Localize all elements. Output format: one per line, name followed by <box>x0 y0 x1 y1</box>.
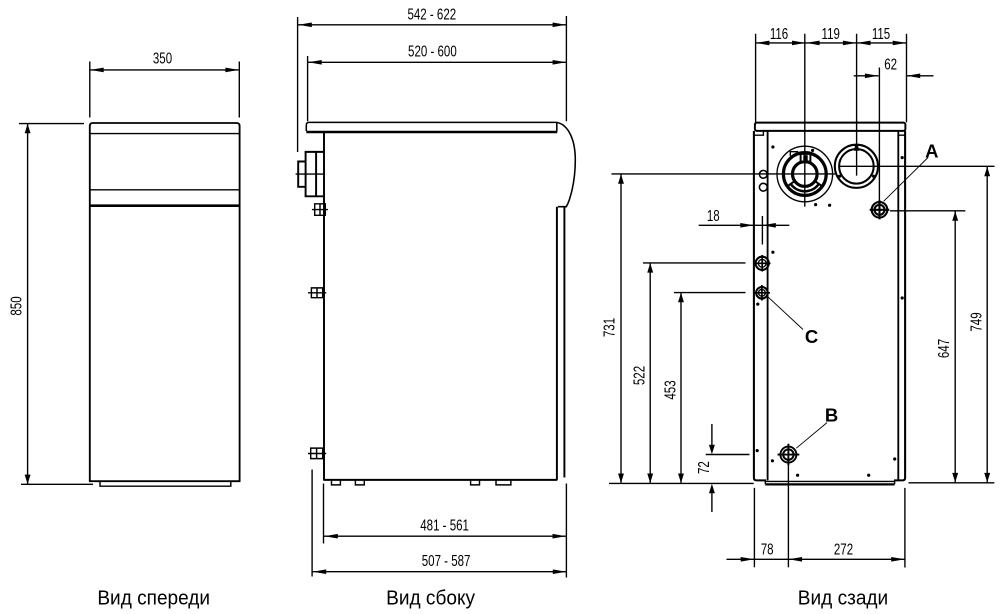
svg-text:647: 647 <box>934 339 952 358</box>
svg-text:542 - 622: 542 - 622 <box>407 4 456 22</box>
svg-text:62: 62 <box>884 55 897 73</box>
svg-text:78: 78 <box>761 539 774 557</box>
svg-text:522: 522 <box>630 366 648 385</box>
svg-text:520 - 600: 520 - 600 <box>408 42 457 60</box>
svg-text:507 - 587: 507 - 587 <box>422 551 471 569</box>
svg-text:18: 18 <box>707 206 720 224</box>
svg-text:850: 850 <box>7 296 25 315</box>
svg-text:272: 272 <box>834 539 853 557</box>
svg-text:72: 72 <box>694 461 712 474</box>
svg-text:Вид сзади: Вид сзади <box>798 587 888 610</box>
svg-text:749: 749 <box>966 312 984 331</box>
svg-text:Вид сбоку: Вид сбоку <box>386 587 475 610</box>
svg-text:481 - 561: 481 - 561 <box>420 516 469 534</box>
svg-text:731: 731 <box>599 318 617 337</box>
svg-text:453: 453 <box>661 380 679 399</box>
svg-text:B: B <box>825 405 838 426</box>
svg-text:C: C <box>805 326 818 347</box>
svg-text:119: 119 <box>822 24 841 42</box>
svg-text:350: 350 <box>153 49 172 67</box>
svg-text:116: 116 <box>770 24 789 42</box>
svg-text:A: A <box>925 140 938 161</box>
svg-text:Вид спереди: Вид спереди <box>97 587 210 610</box>
svg-text:115: 115 <box>872 24 891 42</box>
